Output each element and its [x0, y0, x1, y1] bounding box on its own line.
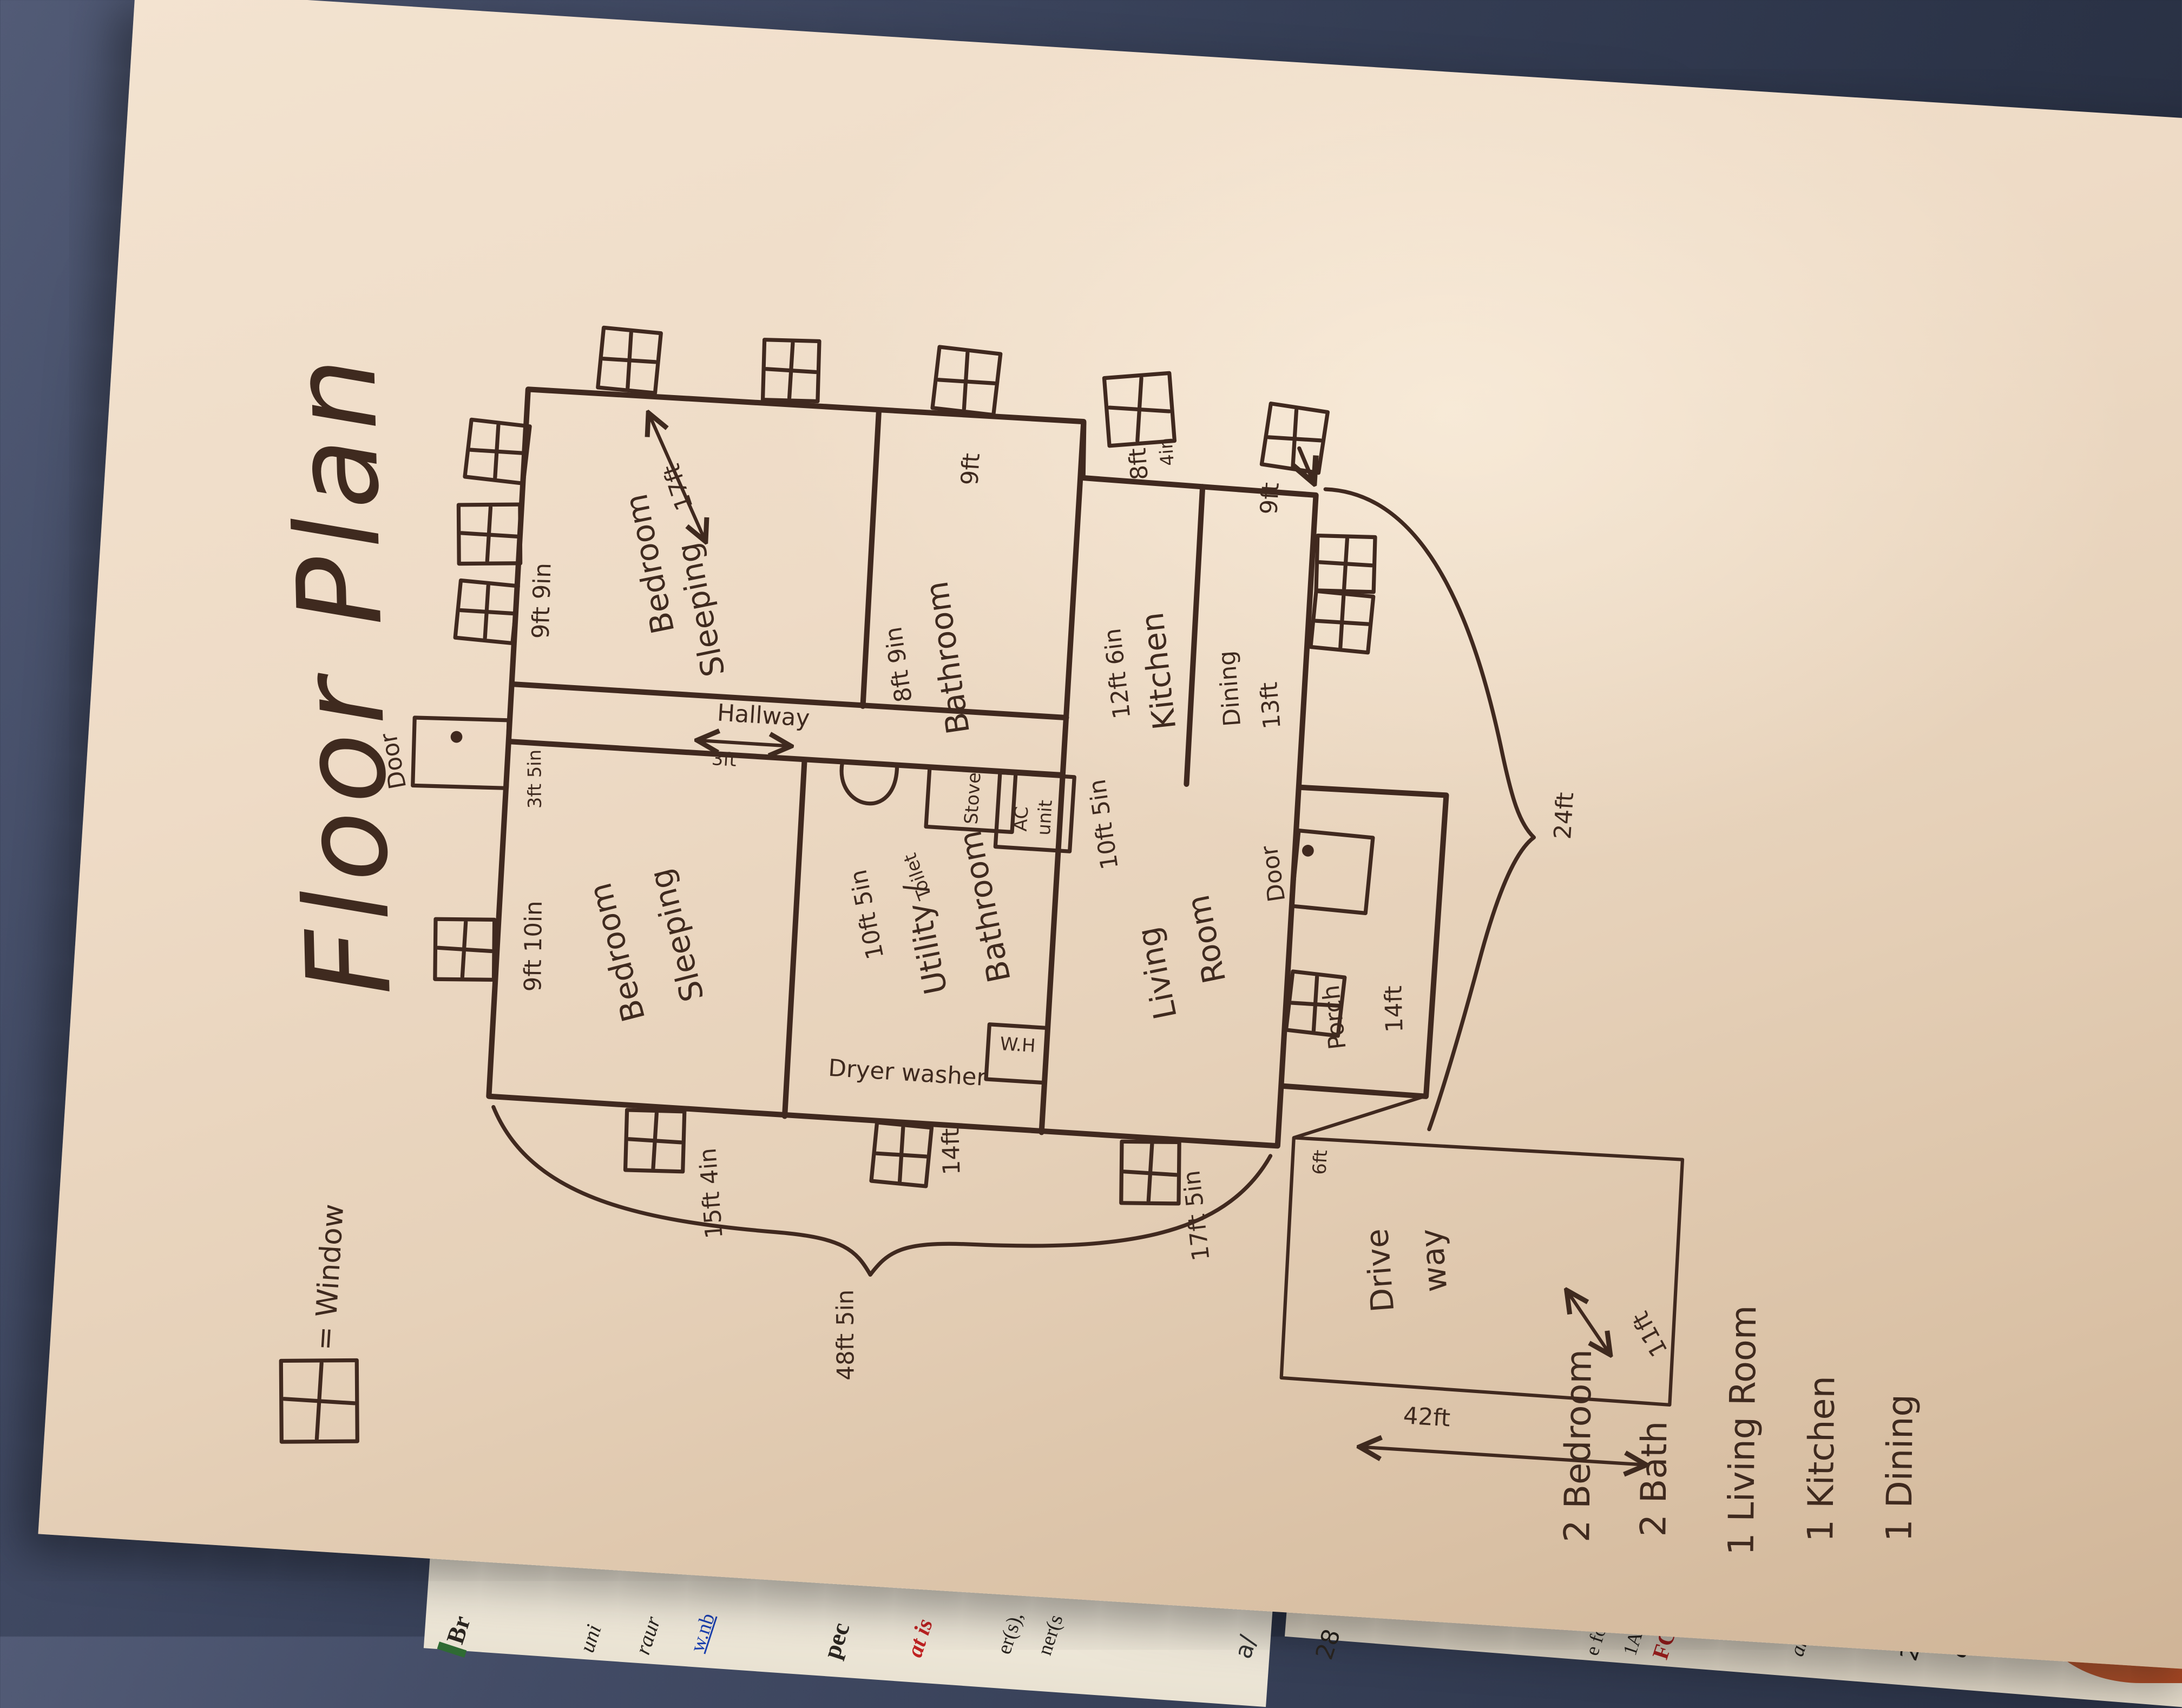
note-dining: 1 Dining [1879, 1394, 1921, 1542]
kitchen-width: 12ft 6in [1099, 627, 1136, 720]
living-label-1: Living [1129, 924, 1184, 1022]
laundry-label: Dryer washer [827, 1055, 987, 1092]
driveway-width: 11ft [1627, 1307, 1673, 1361]
kitchen-dining-wall [1184, 487, 1205, 784]
window-note-4in: 4in [1155, 437, 1178, 467]
driveway-label-1: Drive [1358, 1227, 1402, 1313]
window-note-8ft: 8ft [1124, 447, 1153, 481]
bedroom1-label-1: Bedroom [617, 491, 681, 637]
bedroom1-width: 9ft 9in [528, 562, 557, 639]
driveway-length-arrow [1362, 1447, 1644, 1465]
bedroom2-width: 9ft 10in [520, 901, 548, 991]
note-living: 1 Living Room [1721, 1305, 1765, 1555]
stove-label: Stove [961, 772, 985, 825]
porch-width: 14ft [1381, 986, 1409, 1033]
living-width: 10ft 5in [1084, 778, 1124, 871]
window-icon [598, 327, 661, 393]
ac-unit-label-2: unit [1033, 799, 1056, 836]
utility-width: 10ft 5in [845, 867, 889, 961]
porch-door-label: Door [1256, 844, 1291, 904]
bedroom2-utility-wall [782, 760, 807, 1116]
front-door-width: 3ft 5in [524, 750, 545, 809]
window-icon [871, 1122, 932, 1186]
legend-window-icon [276, 1356, 363, 1447]
hallway-width: 3ft [711, 748, 737, 771]
legend-label: = Window [307, 1203, 350, 1351]
living-label-2: Room [1179, 892, 1233, 987]
window-icon [1261, 403, 1328, 473]
window-icon [432, 916, 497, 983]
ac-unit-label-1: AC [1010, 806, 1033, 832]
drawing-title: Floor Plan [268, 349, 417, 997]
driveway-label-2: way [1413, 1227, 1455, 1293]
window-icon [932, 347, 1001, 415]
window-icon [455, 580, 518, 643]
note-kitchen: 1 Kitchen [1800, 1376, 1843, 1542]
water-heater-label: W.H [1000, 1033, 1036, 1056]
dining-label: Dining [1213, 649, 1246, 727]
driveway-outline [1279, 1088, 1688, 1405]
utility-label-2: Bathroom [951, 827, 1018, 986]
floor-plan-drawing: Floor Plan = Window Door 3ft 5in Door [25, 0, 2140, 1626]
note-bedrooms: 2 Bedroom [1557, 1349, 1600, 1543]
window-note-9ft: 9ft [1256, 482, 1285, 515]
window-icon [455, 501, 524, 568]
bedroom2-label-1: Bedroom [581, 879, 652, 1026]
rear-width: 24ft [1549, 791, 1579, 840]
driveway-length: 42ft [1402, 1402, 1451, 1432]
bedroom2-label-2: Sleeping [642, 865, 711, 1006]
window-icon [761, 338, 821, 403]
window-icon [1118, 1139, 1182, 1207]
window-icon [1311, 591, 1373, 653]
toilet-icon [839, 763, 897, 805]
window-icon [1314, 534, 1377, 594]
dining-width: 13ft [1256, 681, 1286, 730]
bedroom-bathroom-wall [860, 410, 882, 706]
bedroom1-label-2: Sleeping [669, 540, 732, 680]
hallway-label: Hallway [717, 699, 811, 732]
utility-side-dim: 14ft [937, 1128, 965, 1175]
porch-door [1291, 830, 1373, 913]
window-icon [465, 419, 530, 484]
hallway-width-arrow [700, 740, 788, 746]
bathroom1-width: 8ft 9in [880, 625, 918, 704]
front-door [410, 714, 511, 791]
bedroom1-length: 17ft [658, 461, 699, 514]
porch-depth: 6ft [1309, 1149, 1331, 1175]
overall-length: 48ft 5in [832, 1290, 859, 1381]
bathroom1-label: Bathroom [918, 579, 977, 737]
window-size-arrow [1297, 448, 1315, 481]
note-baths: 2 Bath [1633, 1421, 1675, 1536]
kitchen-label: Kitchen [1134, 610, 1184, 732]
porch-label: Porch [1318, 984, 1352, 1051]
bathroom-window-size: 9ft [956, 452, 985, 486]
driveway-width-arrow [1565, 1292, 1613, 1352]
window-icon [623, 1108, 687, 1173]
utility-label-1: Utility / [896, 879, 955, 997]
